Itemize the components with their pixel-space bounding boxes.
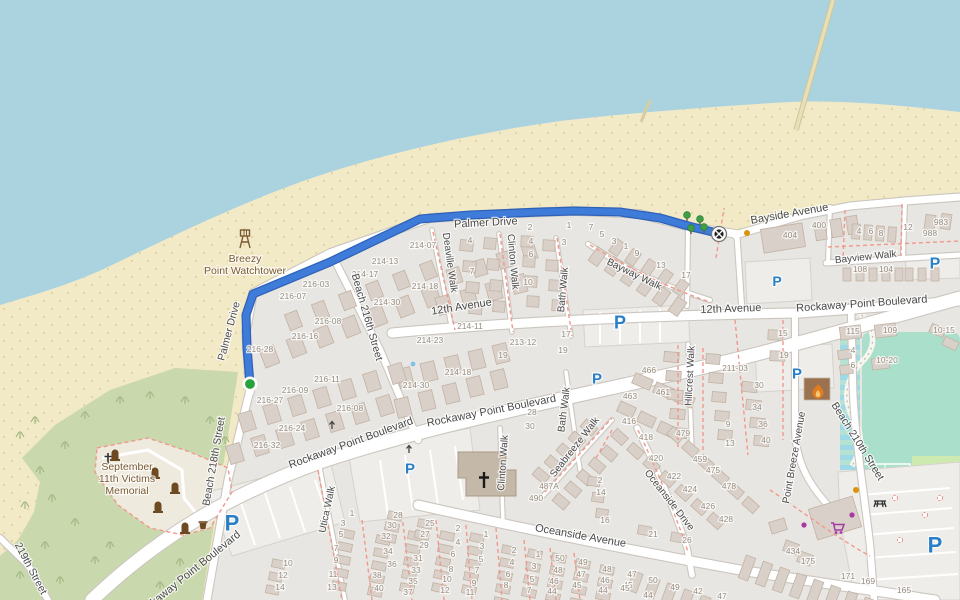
house-number: 478 — [722, 481, 736, 491]
house-number: 3 — [562, 237, 567, 247]
house-number: 418 — [639, 432, 653, 442]
house-number: 214-30 — [403, 380, 430, 390]
house-number: 216-07 — [280, 291, 307, 301]
house-number: 45 — [620, 583, 630, 593]
house-number: 104 — [879, 264, 893, 274]
house-number: 214-13 — [372, 256, 399, 266]
house-number: 2 — [528, 222, 533, 232]
parking-icon: P — [225, 511, 240, 536]
street-label: 12th Avenue — [700, 302, 761, 316]
house-number: 32 — [381, 531, 391, 541]
route-start-marker[interactable] — [243, 377, 258, 392]
house-number: 46 — [549, 576, 559, 586]
house-number: 40 — [761, 435, 771, 445]
house-number: 34 — [383, 546, 393, 556]
house-number: 30 — [525, 421, 535, 431]
house-number: 3 — [341, 518, 346, 528]
house-number: 3 — [480, 541, 485, 551]
house-number: 37 — [403, 587, 413, 597]
house-number: 6 — [529, 249, 534, 259]
house-number: 3 — [532, 561, 537, 571]
house-number: 490 — [529, 493, 543, 503]
house-number: 14 — [596, 487, 606, 497]
route-destination-marker[interactable] — [712, 227, 727, 242]
breezy-point-watchtower-label: Breezy — [229, 253, 262, 265]
house-number: 216-11 — [314, 374, 340, 384]
house-number: 4 — [857, 226, 862, 236]
house-number: 33 — [411, 565, 421, 575]
house-number: 17 — [561, 329, 571, 339]
parking-icon: P — [405, 460, 415, 477]
map-canvas[interactable]: 214-07214-13214-17216-03216-07214-18214-… — [0, 0, 960, 600]
house-number: 49 — [670, 582, 680, 592]
house-number: 10-15 — [933, 325, 955, 335]
house-number: 34 — [752, 402, 762, 412]
house-number: 463 — [623, 391, 637, 401]
house-number: 216-24 — [279, 423, 306, 433]
house-number: 426 — [701, 501, 715, 511]
house-number: 214-23 — [417, 335, 444, 345]
house-number: 1 — [484, 529, 489, 539]
parking-icon: P — [928, 533, 943, 558]
house-number: 216-09 — [282, 385, 309, 395]
house-number: 6 — [506, 569, 511, 579]
house-number: 4 — [851, 345, 856, 355]
house-number: 171 — [841, 571, 855, 581]
house-number: 35 — [408, 576, 418, 586]
house-number: 109 — [883, 325, 897, 335]
house-number: 5 — [479, 554, 484, 564]
house-number: 983 — [934, 217, 948, 227]
house-number: 10 — [442, 574, 452, 584]
house-number: 6 — [869, 226, 874, 236]
house-number: 5 — [530, 574, 535, 584]
poi-dot-orange-icon — [744, 230, 750, 236]
house-number: 8 — [879, 228, 884, 238]
house-number: 7 — [589, 222, 594, 232]
house-number: 5 — [339, 529, 344, 539]
house-number: 216-08 — [337, 403, 364, 413]
house-number: 13 — [656, 260, 666, 270]
house-number: 108 — [853, 264, 867, 274]
house-number: 424 — [683, 484, 697, 494]
shop-dot-icon — [801, 522, 806, 527]
house-number: 422 — [667, 471, 681, 481]
house-number: 14 — [275, 582, 285, 592]
house-number: 416 — [622, 416, 636, 426]
house-number: 44 — [547, 586, 557, 596]
house-number: 216-08 — [315, 316, 342, 326]
house-number: 115 — [846, 326, 860, 336]
house-number: 45 — [572, 580, 582, 590]
house-number: 169 — [861, 576, 875, 586]
house-number: 216-03 — [303, 279, 330, 289]
house-number: 29 — [419, 540, 429, 550]
house-number: 13 — [327, 582, 337, 592]
house-number: 7 — [334, 543, 339, 553]
house-number: 10 — [523, 277, 533, 287]
house-number: 28 — [393, 510, 403, 520]
house-number: 4 — [468, 235, 473, 245]
house-number: 47 — [717, 591, 727, 600]
parking-icon: P — [792, 365, 802, 382]
house-number: 5 — [600, 229, 605, 239]
house-number: 214-18 — [445, 367, 472, 377]
house-number: 48 — [553, 565, 563, 575]
house-number: 50 — [555, 553, 565, 563]
house-number: 4 — [456, 537, 461, 547]
house-number: 30 — [754, 380, 764, 390]
house-number: 211-03 — [722, 363, 748, 373]
house-number: 47 — [627, 569, 637, 579]
house-number: 400 — [812, 220, 826, 230]
house-number: 7 — [470, 266, 475, 276]
house-number: 38 — [372, 570, 382, 580]
house-number: 479 — [676, 428, 690, 438]
house-number: 214-11 — [457, 321, 483, 331]
water-dot-icon — [411, 362, 416, 367]
house-number: 6 — [451, 549, 456, 559]
house-number: 49 — [578, 557, 588, 567]
house-number: 459 — [693, 454, 707, 464]
house-number: 216-28 — [247, 344, 274, 354]
september-11th-victims-memorial-label: 11th Victims — [99, 473, 155, 485]
house-number: 2 — [598, 475, 603, 485]
house-number: 175 — [801, 556, 815, 566]
house-number: 6 — [851, 360, 856, 370]
house-number: 428 — [719, 514, 733, 524]
house-number: 4 — [510, 557, 515, 567]
house-number: 1 — [624, 241, 629, 251]
house-number: 2 — [456, 523, 461, 533]
house-number: 7 — [527, 585, 532, 595]
house-number: 36 — [758, 419, 768, 429]
september-11th-victims-memorial-label: Memorial — [105, 485, 148, 497]
house-number: 47 — [576, 569, 586, 579]
house-number: 17 — [681, 270, 691, 280]
house-number: 216-32 — [254, 440, 281, 450]
house-number: 466 — [642, 365, 656, 375]
house-number: 461 — [656, 387, 670, 397]
poi-dot-orange-icon — [853, 487, 859, 493]
house-number: 15 — [778, 328, 788, 338]
house-number: 9 — [334, 555, 339, 565]
house-number: 16 — [600, 515, 610, 525]
house-number: 404 — [783, 230, 797, 240]
house-number: 8 — [504, 580, 509, 590]
house-number: 27 — [420, 529, 430, 539]
september-11th-victims-memorial-label: September — [101, 461, 153, 473]
house-number: 19 — [498, 350, 508, 360]
map-svg: 214-07214-13214-17216-03216-07214-18214-… — [0, 0, 960, 600]
house-number: 36 — [387, 559, 397, 569]
house-number: 19 — [558, 345, 568, 355]
parking-icon: P — [592, 370, 602, 387]
house-number: 25 — [425, 518, 435, 528]
house-number: 216-16 — [292, 331, 319, 341]
house-number: 9 — [635, 248, 640, 258]
house-number: 10-20 — [876, 355, 898, 365]
breezy-point-watchtower-label: Point Watchtower — [204, 265, 286, 277]
house-number: 30 — [387, 520, 397, 530]
house-number: 165 — [897, 585, 911, 595]
house-number: 40 — [374, 583, 384, 593]
house-number: 46 — [600, 575, 610, 585]
house-number: 21 — [648, 529, 658, 539]
house-number: 214-07 — [410, 240, 437, 250]
house-number: 50 — [648, 575, 658, 585]
shop-dot-icon — [849, 512, 854, 517]
house-number: 12 — [440, 585, 450, 595]
house-number: 12 — [903, 222, 913, 232]
house-number: 214-30 — [374, 297, 401, 307]
house-number: 11 — [329, 569, 338, 579]
house-number: 213-12 — [510, 337, 537, 347]
house-number: 988 — [923, 228, 937, 238]
house-number: 1 — [536, 549, 541, 559]
house-number: 9 — [726, 419, 731, 429]
house-number: 26 — [682, 535, 692, 545]
parking-icon: P — [772, 273, 781, 289]
house-number: 11 — [466, 587, 475, 597]
house-number: 48 — [602, 564, 612, 574]
parking-icon: P — [930, 256, 941, 273]
house-number: 434 — [786, 546, 800, 556]
house-number: 487A — [539, 481, 559, 491]
house-number: 31 — [413, 553, 423, 563]
house-number: 216-27 — [257, 395, 284, 405]
house-number: 475 — [706, 465, 720, 475]
house-number: 12 — [278, 570, 288, 580]
house-number: 2 — [512, 545, 517, 555]
house-number: 420 — [649, 453, 663, 463]
house-number: 1 — [567, 220, 572, 230]
house-number: 44 — [598, 585, 608, 595]
house-number: 7 — [475, 565, 480, 575]
house-number: 3 — [612, 236, 617, 246]
house-number: 4 — [529, 236, 534, 246]
house-number: 13 — [725, 438, 735, 448]
house-number: 10 — [283, 558, 293, 568]
house-number: 214-18 — [412, 281, 439, 291]
house-number: 1 — [350, 508, 355, 518]
house-number: 42 — [693, 586, 703, 596]
parking-icon: P — [614, 312, 626, 332]
house-number: 19 — [779, 350, 789, 360]
house-number: 44 — [643, 590, 653, 600]
house-number: 8 — [449, 564, 454, 574]
